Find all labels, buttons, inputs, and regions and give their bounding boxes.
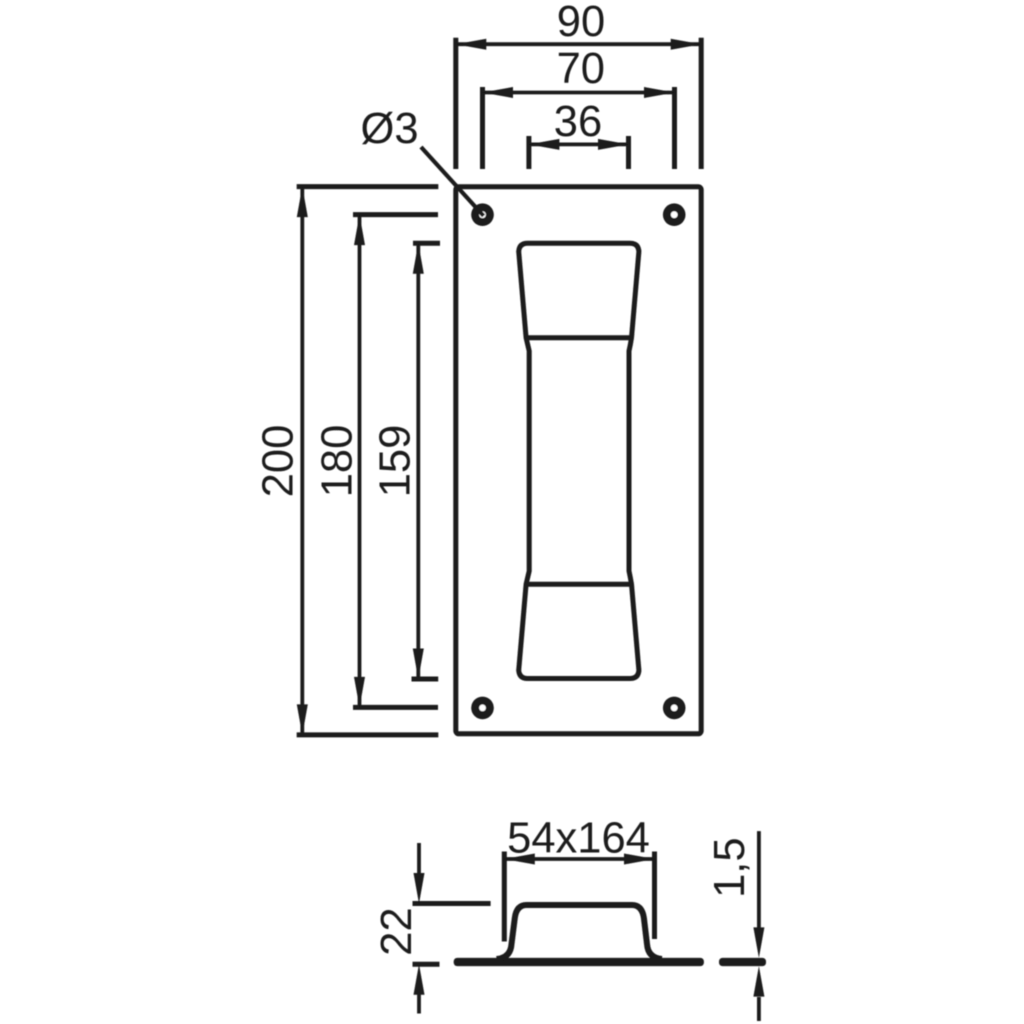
svg-text:180: 180: [314, 425, 362, 498]
svg-text:Ø3: Ø3: [360, 105, 418, 153]
svg-text:1,5: 1,5: [706, 837, 754, 897]
svg-text:200: 200: [255, 425, 303, 498]
svg-text:159: 159: [372, 425, 420, 498]
svg-text:90: 90: [557, 0, 605, 46]
svg-text:54x164: 54x164: [507, 815, 650, 863]
svg-text:22: 22: [373, 907, 421, 955]
svg-text:36: 36: [554, 98, 602, 146]
svg-text:70: 70: [557, 45, 605, 93]
